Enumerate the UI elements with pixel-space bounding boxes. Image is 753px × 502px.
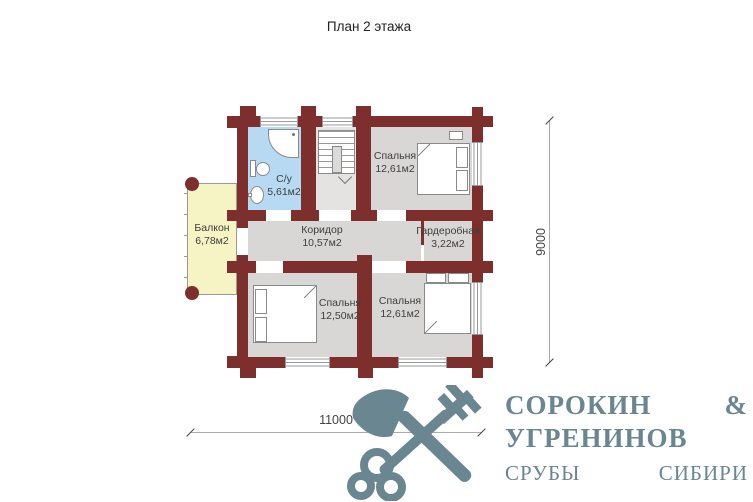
log-stub: [227, 356, 237, 368]
room-area: 12,61м2: [360, 308, 440, 321]
dimension-label-vertical: 9000: [521, 217, 561, 267]
nightstand-icon: [449, 131, 463, 140]
log-stub: [358, 368, 373, 378]
logo-company-line1: СОРОКИН &: [505, 389, 748, 422]
room-label-balcony: Балкон 6,78м2: [182, 222, 242, 249]
log-stub: [227, 116, 237, 128]
room-name: Спальня: [355, 150, 435, 163]
room-label-wardrobe: Гардеробная 3,22м2: [408, 225, 488, 252]
stairs-opening: [319, 210, 351, 221]
wall-mid-b-seg2: [283, 261, 357, 273]
blanket-fold-icon: [425, 321, 437, 333]
room-area: 5,61м2: [254, 186, 314, 199]
log-stub: [483, 210, 493, 221]
log-stub: [227, 210, 237, 221]
bedroom-bottom-left-door: [256, 261, 283, 273]
room-label-bedroom-top: Спальня 12,61м2: [355, 150, 435, 177]
pillow-icon: [255, 289, 267, 314]
balcony-log-end-bottom: [185, 286, 199, 300]
log-stub: [227, 261, 237, 273]
axe-and-key-logo-icon: [341, 385, 495, 501]
room-name: Балкон: [182, 222, 242, 235]
logo-company-line2: УГРЕНИНОВ: [505, 422, 748, 455]
pillow-icon: [448, 273, 469, 283]
floor-plan-page: План 2 этажа: [0, 0, 753, 502]
room-area: 10,57м2: [282, 237, 362, 250]
room-area: 12,61м2: [355, 163, 435, 176]
wall-mid-a-seg1: [237, 210, 266, 221]
balcony-log-end-top: [185, 177, 199, 191]
log-stub: [356, 106, 371, 116]
room-area: 6,78м2: [182, 235, 242, 248]
bathroom-door: [266, 210, 291, 221]
room-label-bedroom-bottom-right: Спальня 12,61м2: [360, 295, 440, 322]
pillow-icon: [456, 170, 468, 191]
log-stub: [240, 106, 256, 116]
shower-drain-icon: [292, 133, 295, 136]
logo-text-block: СОРОКИН & УГРЕНИНОВ СРУБЫ СИБИРИ: [505, 389, 748, 488]
bedroom-top-door: [377, 210, 406, 221]
room-name: Коридор: [282, 224, 362, 237]
log-stub: [483, 261, 493, 273]
log-stub: [240, 368, 256, 378]
window-bottom-left-bedroom: [285, 357, 330, 368]
stairs-stringer: [332, 146, 342, 173]
window-top-stairs: [322, 116, 353, 127]
bedroom-bottom-right-door: [379, 261, 406, 273]
page-title: План 2 этажа: [284, 19, 454, 34]
room-name: Спальня: [360, 295, 440, 308]
room-label-corridor: Коридор 10,57м2: [282, 224, 362, 251]
wall-mid-a-seg4: [406, 210, 472, 221]
pillow-icon: [456, 147, 468, 168]
pillow-icon: [255, 317, 267, 342]
window-right-bedroom-bottom: [472, 282, 483, 335]
wall-mid-b-seg1: [237, 261, 256, 273]
wall-mid-b-seg3: [406, 261, 472, 273]
sink-tap-icon: [248, 193, 252, 197]
room-name: Гардеробная: [408, 225, 488, 238]
room-area: 3,22м2: [408, 238, 488, 251]
logo-tagline: СРУБЫ СИБИРИ: [505, 458, 748, 488]
window-top-bathroom: [260, 116, 298, 127]
window-right-bedroom-top: [472, 142, 483, 186]
room-name: С/у: [254, 173, 314, 186]
log-stub: [301, 106, 316, 116]
room-label-bathroom: С/у 5,61м2: [254, 173, 314, 200]
window-bottom-right-bedroom: [398, 357, 447, 368]
pillow-icon: [426, 273, 446, 283]
